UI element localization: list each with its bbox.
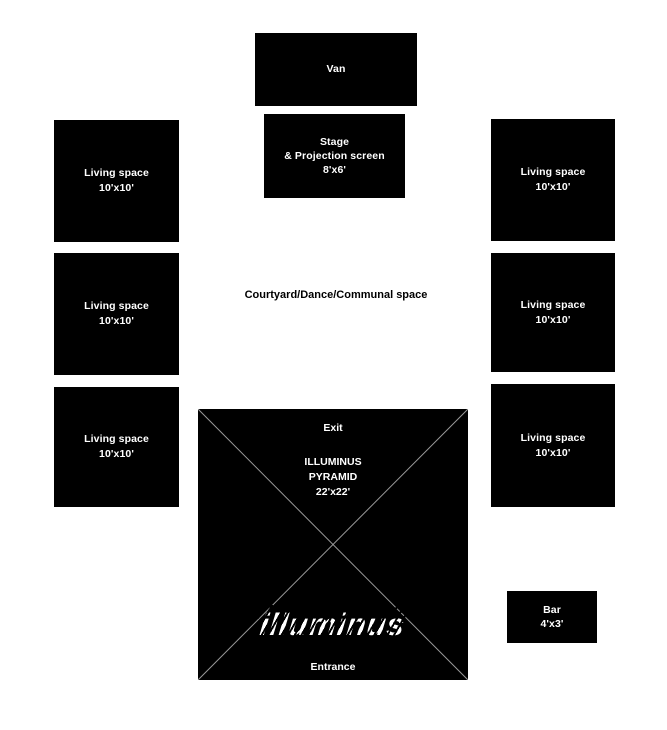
living-space-size: 10'x10'	[536, 180, 571, 195]
event-floor-plan: Van Stage & Projection screen 8'x6' Livi…	[0, 0, 667, 730]
living-space-size: 10'x10'	[99, 181, 134, 196]
bar-label: Bar	[543, 603, 561, 617]
living-space-left-2: Living space 10'x10'	[54, 253, 179, 375]
living-space-right-1: Living space 10'x10'	[491, 119, 615, 241]
living-space-label: Living space	[521, 431, 586, 446]
bar-size-label: 4'x3'	[540, 617, 563, 631]
living-space-label: Living space	[521, 165, 586, 180]
living-space-size: 10'x10'	[99, 314, 134, 329]
van-label: Van	[327, 62, 346, 77]
living-space-size: 10'x10'	[536, 446, 571, 461]
stage-label-line2: & Projection screen	[284, 149, 385, 163]
pyramid-title-line1: ILLUMINUS	[198, 455, 468, 470]
pyramid-title-line2: PYRAMID	[198, 470, 468, 485]
living-space-label: Living space	[84, 432, 149, 447]
courtyard-label: Courtyard/Dance/Communal space	[198, 289, 474, 302]
stage-size-label: 8'x6'	[323, 163, 346, 177]
stage-box: Stage & Projection screen 8'x6'	[264, 114, 405, 198]
living-space-left-1: Living space 10'x10'	[54, 120, 179, 242]
illuminus-logo-text: illuminus	[259, 607, 408, 643]
living-space-label: Living space	[84, 166, 149, 181]
pyramid-exit-label: Exit	[198, 421, 468, 435]
pyramid-box: Exit ILLUMINUS PYRAMID 22'x22' illuminus…	[198, 409, 468, 680]
living-space-label: Living space	[521, 298, 586, 313]
living-space-right-2: Living space 10'x10'	[491, 253, 615, 372]
illuminus-logo: illuminus	[198, 607, 468, 643]
living-space-label: Living space	[84, 299, 149, 314]
stage-label-line1: Stage	[320, 135, 349, 149]
living-space-left-3: Living space 10'x10'	[54, 387, 179, 507]
pyramid-title: ILLUMINUS PYRAMID 22'x22'	[198, 455, 468, 500]
living-space-right-3: Living space 10'x10'	[491, 384, 615, 507]
pyramid-entrance-label: Entrance	[198, 660, 468, 674]
bar-box: Bar 4'x3'	[507, 591, 597, 643]
pyramid-size-label: 22'x22'	[198, 485, 468, 500]
van-box: Van	[255, 33, 417, 106]
living-space-size: 10'x10'	[536, 313, 571, 328]
living-space-size: 10'x10'	[99, 447, 134, 462]
